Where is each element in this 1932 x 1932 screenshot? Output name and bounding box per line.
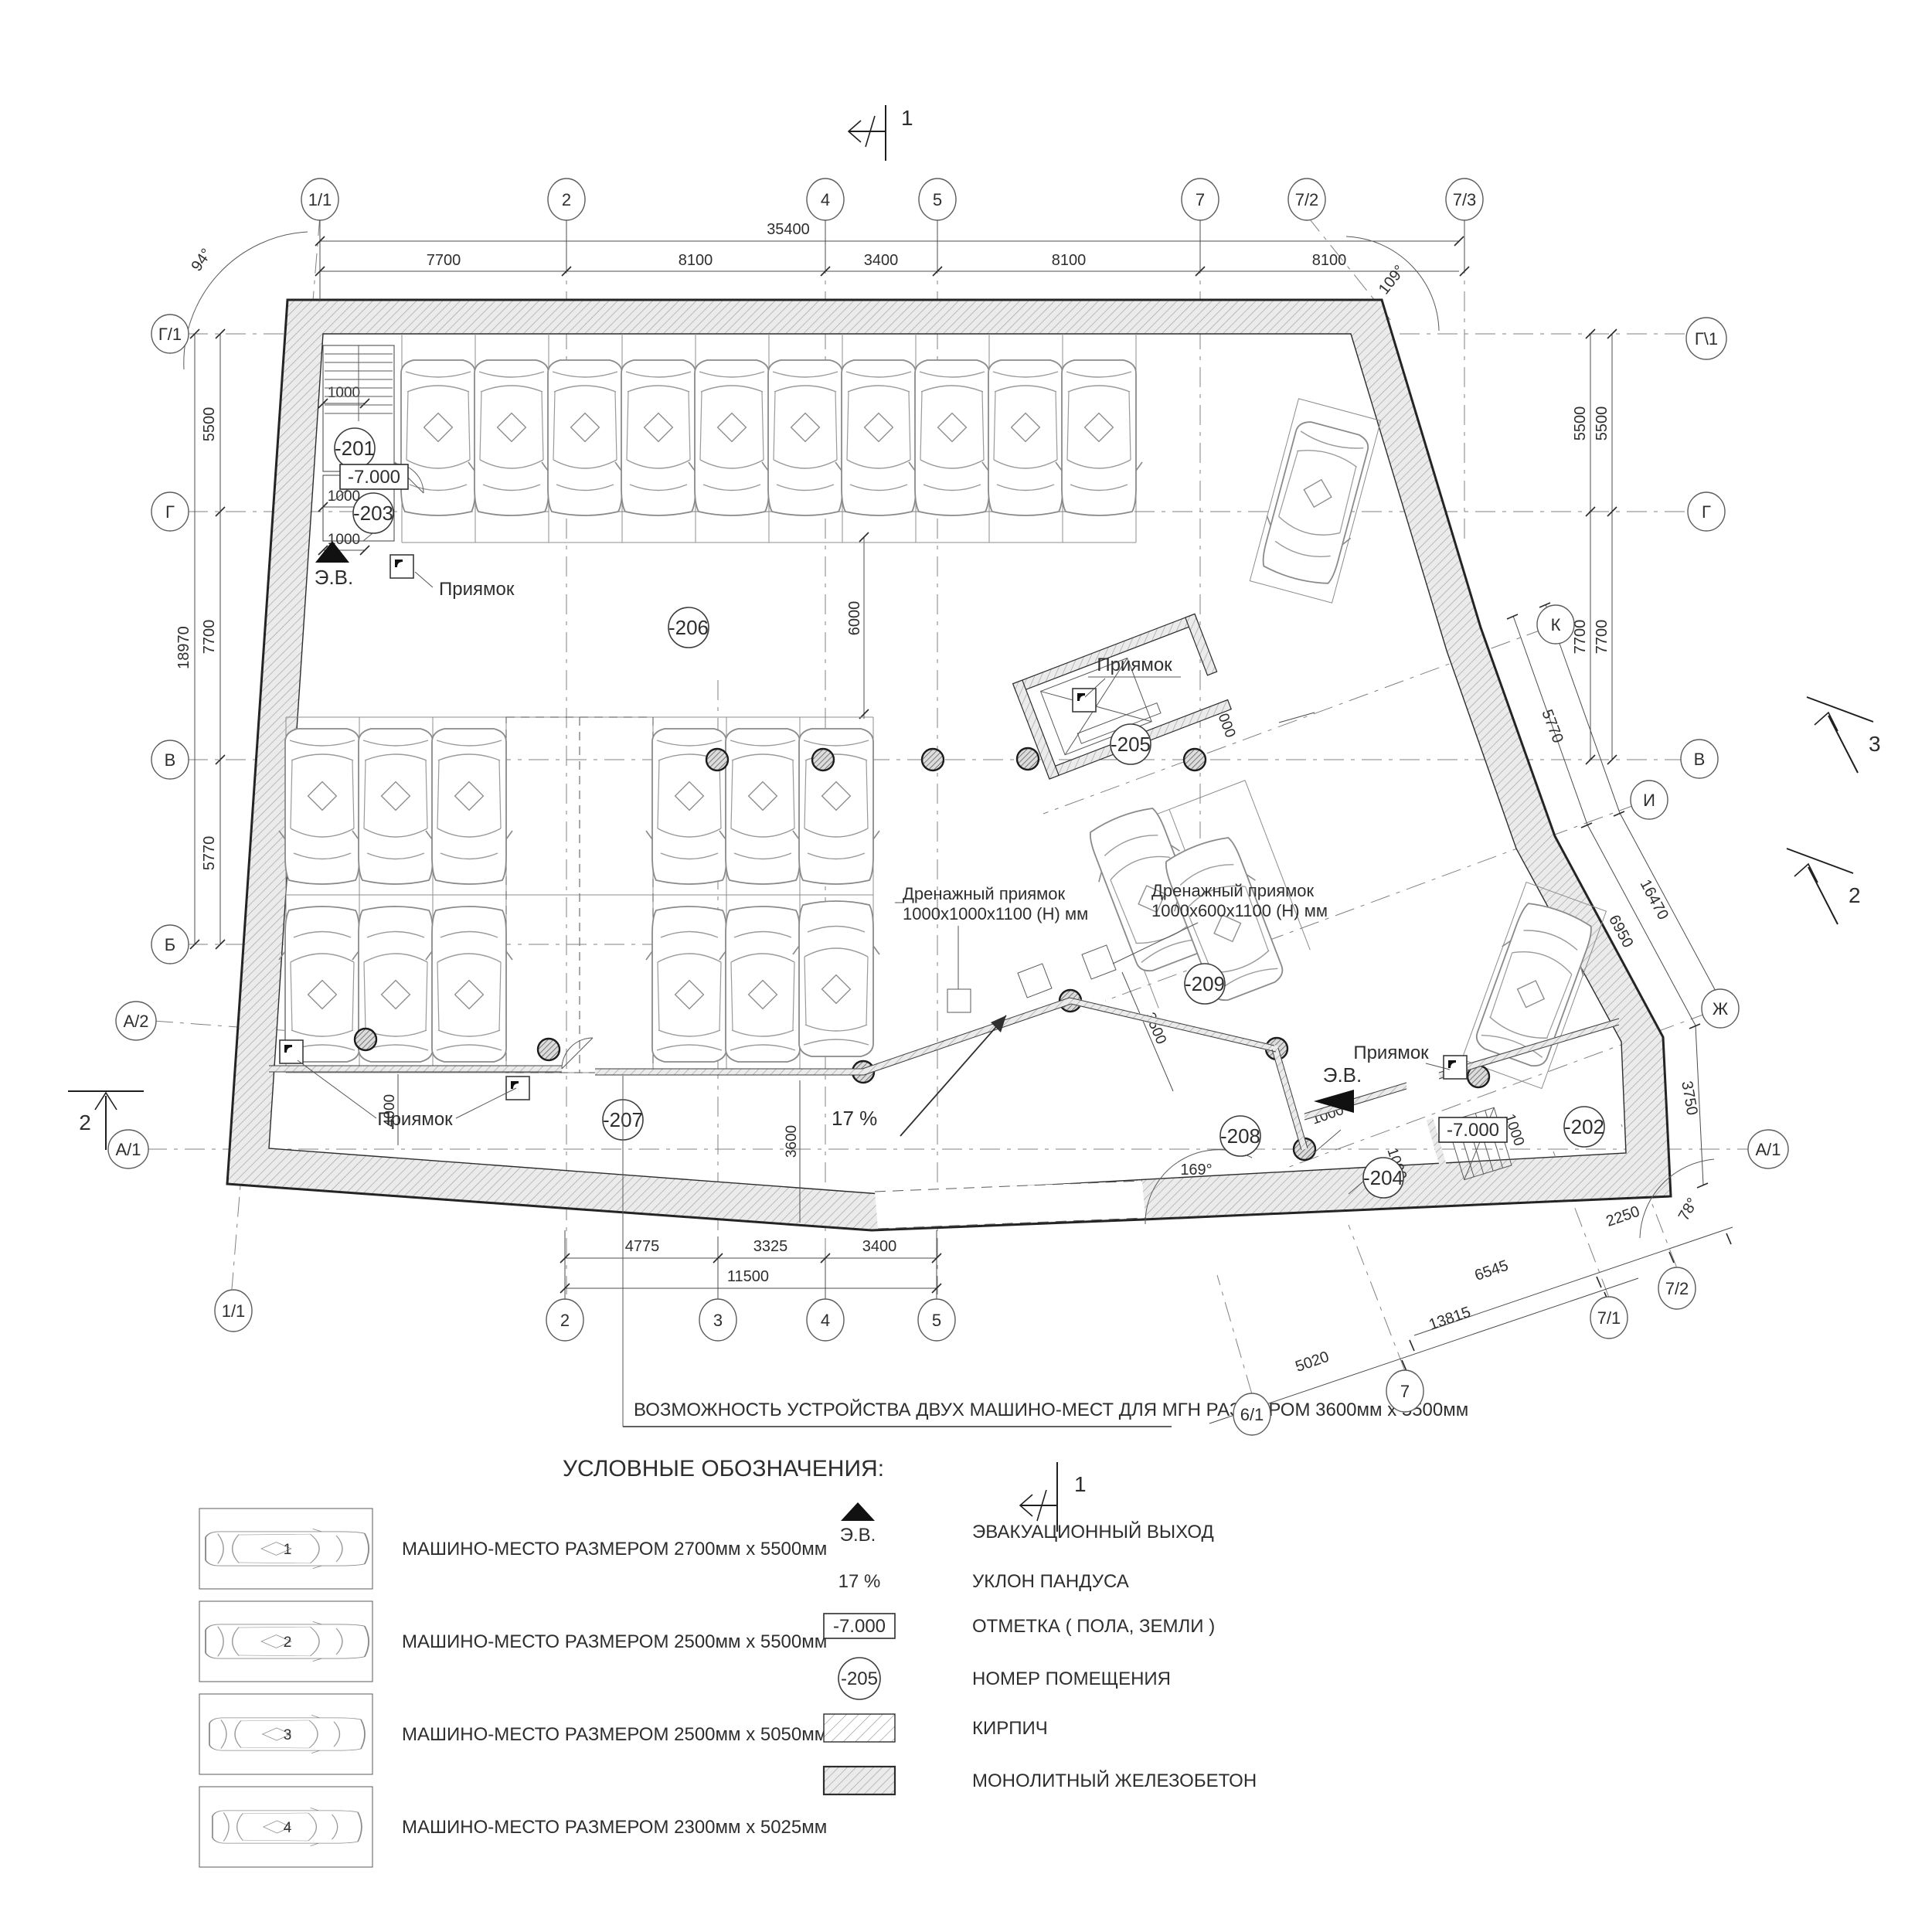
car-symbol	[542, 360, 628, 515]
legend-brick-label: КИРПИЧ	[972, 1718, 1048, 1739]
drain-2-title: Дренажный приямок	[1151, 881, 1315, 900]
section-cut-3-right: 3	[1807, 697, 1881, 773]
legend-car-mark-3: 3	[284, 1727, 292, 1743]
column	[1184, 749, 1206, 770]
drain-pit	[1082, 945, 1116, 979]
dim-left-total: 18970	[175, 626, 192, 669]
drain-1-title: Дренажный приямок	[903, 884, 1066, 903]
column	[538, 1039, 560, 1060]
level-2: -7.000	[1447, 1120, 1499, 1141]
axis-right-v: В	[1694, 750, 1706, 769]
legend-exit-sym: Э.В.	[840, 1525, 876, 1546]
room-202: -202	[1564, 1115, 1604, 1138]
axis-br-7-1: 7/1	[1597, 1308, 1621, 1328]
axis-bot-3: 3	[713, 1311, 723, 1330]
car-symbol	[468, 360, 555, 515]
angle-169: 169°	[1180, 1162, 1212, 1179]
exit-label-1: Э.В.	[315, 566, 353, 589]
drain-2-size: 1000х600х1100 (Н) мм	[1151, 901, 1328, 920]
dim-left-3: 5770	[201, 836, 218, 871]
legend-brick-swatch	[824, 1714, 895, 1742]
axis-left-v: В	[165, 750, 176, 770]
legend-car-mark-4: 4	[284, 1820, 292, 1836]
column	[706, 749, 728, 770]
legend-car-label-4: МАШИНО-МЕСТО РАЗМЕРОМ 2300мм х 5025мм	[402, 1817, 827, 1838]
dim-top-1: 7700	[427, 252, 461, 269]
section-1-label-b: 1	[1074, 1472, 1087, 1496]
section-cut-2-right: 2	[1787, 849, 1861, 924]
column	[1017, 748, 1039, 770]
dim-top-2: 8100	[679, 252, 713, 269]
room-203: -203	[353, 502, 393, 525]
dim-left-2: 7700	[201, 620, 218, 655]
axis-top-7: 7	[1196, 190, 1205, 209]
legend-concrete-label: МОНОЛИТНЫЙ ЖЕЛЕЗОБЕТОН	[972, 1770, 1257, 1791]
legend-exit-icon	[841, 1502, 875, 1521]
dim-left-1: 5500	[201, 407, 218, 442]
legend-car-label-1: МАШИНО-МЕСТО РАЗМЕРОМ 2700мм х 5500мм	[402, 1539, 827, 1560]
dim-right-v2: 5500	[1594, 406, 1611, 441]
car-symbol	[835, 360, 922, 515]
column	[922, 749, 944, 770]
car-symbol	[1056, 360, 1142, 515]
dim-1000-a: 1000	[328, 385, 360, 401]
exit-label-2: Э.В.	[1323, 1063, 1362, 1087]
car-symbol	[909, 360, 995, 515]
axis-bot-5: 5	[932, 1311, 941, 1330]
room-209: -209	[1185, 972, 1225, 995]
dim-br-13815: 13815	[1427, 1304, 1473, 1334]
angle-109: 109°	[1376, 262, 1409, 298]
car-symbol	[762, 360, 849, 515]
car-symbol	[352, 729, 439, 884]
dim-top-4: 8100	[1052, 252, 1087, 269]
legend-car-mark-1: 1	[284, 1542, 292, 1558]
pit-label-4: Приямок	[1353, 1043, 1429, 1063]
axis-right-g: Г	[1702, 502, 1711, 522]
room-206: -206	[668, 616, 709, 639]
legend-title: УСЛОВНЫЕ ОБОЗНАЧЕНИЯ:	[563, 1456, 884, 1481]
axis-left-g1: Г/1	[158, 325, 182, 344]
axis-right-zh: Ж	[1713, 999, 1729, 1019]
axis-top-1-1: 1/1	[308, 190, 332, 209]
legend-car-mark-2: 2	[284, 1634, 292, 1651]
dim-bottom-1: 4775	[625, 1238, 660, 1255]
room-208: -208	[1220, 1124, 1260, 1148]
car-symbol	[719, 906, 806, 1062]
dim-6000: 6000	[846, 601, 863, 636]
car-symbol	[395, 360, 481, 515]
axis-br-7-2: 7/2	[1665, 1279, 1689, 1298]
car-symbol	[426, 729, 512, 884]
axis-top-2: 2	[562, 190, 571, 209]
pit-symbol	[390, 555, 413, 578]
slope-label: 17 %	[832, 1107, 877, 1130]
angle-94: 94°	[188, 246, 215, 274]
room-201: -201	[335, 437, 375, 460]
dim-rdiag-3750: 3750	[1678, 1080, 1700, 1117]
pit-label-3: Приямок	[377, 1109, 453, 1130]
legend-slope-sym: 17 %	[838, 1571, 881, 1592]
floor-plan-page: 35400 7700 8100 3400 8100 8100 18970 550…	[0, 0, 1932, 1932]
legend: УСЛОВНЫЕ ОБОЗНАЧЕНИЯ: 1 МАШИНО-МЕСТО РАЗ…	[199, 1456, 1257, 1867]
legend-level-label: ОТМЕТКА ( ПОЛА, ЗЕМЛИ )	[972, 1616, 1215, 1637]
axis-top-7-2: 7/2	[1295, 190, 1319, 209]
axis-bot-2: 2	[560, 1311, 570, 1330]
axis-br-7: 7	[1400, 1382, 1410, 1401]
level-1: -7.000	[348, 467, 400, 488]
section-2-label-r: 2	[1849, 883, 1861, 907]
legend-level-sym: -7.000	[833, 1616, 886, 1637]
axis-bot-1-1: 1/1	[222, 1301, 246, 1321]
drain-pit	[947, 989, 971, 1012]
pit-label-2: Приямок	[1097, 655, 1172, 675]
axis-right-a1: А/1	[1755, 1140, 1781, 1159]
angle-78: 78°	[1675, 1195, 1702, 1223]
section-1-label: 1	[901, 106, 913, 130]
dim-right-v1: 5500	[1572, 406, 1589, 441]
car-symbol	[615, 360, 702, 515]
column	[355, 1029, 376, 1050]
axis-right-g1: Г\1	[1695, 329, 1718, 349]
dim-top-3: 3400	[864, 252, 899, 269]
car-symbol	[279, 729, 366, 884]
legend-room-label: НОМЕР ПОМЕЩЕНИЯ	[972, 1668, 1171, 1689]
axis-right-i: И	[1643, 791, 1655, 810]
car-symbol	[426, 906, 512, 1062]
legend-car-label-3: МАШИНО-МЕСТО РАЗМЕРОМ 2500мм х 5050мм	[402, 1724, 827, 1745]
axis-left-a2: А/2	[123, 1012, 148, 1031]
dim-top-5: 8100	[1312, 252, 1347, 269]
pit-label-1: Приямок	[439, 579, 515, 600]
section-3-label: 3	[1869, 732, 1881, 756]
dim-br-2250: 2250	[1604, 1203, 1641, 1230]
axis-left-g: Г	[165, 502, 175, 522]
axis-right-k: К	[1551, 615, 1561, 634]
car-symbol	[689, 360, 775, 515]
dim-right-v4: 7700	[1594, 620, 1611, 655]
section-2-label: 2	[79, 1111, 91, 1134]
floor-plan-drawing: 35400 7700 8100 3400 8100 8100 18970 550…	[0, 0, 1932, 1932]
drain-pit	[1018, 964, 1052, 998]
pit-symbol	[1444, 1056, 1467, 1079]
pit-symbol	[1073, 689, 1096, 712]
dim-br-6545: 6545	[1472, 1257, 1510, 1284]
car-symbol	[793, 729, 879, 884]
dim-br-5020: 5020	[1293, 1349, 1331, 1376]
axis-top-5: 5	[933, 190, 942, 209]
legend-slope-label: УКЛОН ПАНДУСА	[972, 1571, 1129, 1592]
axis-br-6-1: 6/1	[1240, 1405, 1264, 1424]
room-205: -205	[1111, 733, 1151, 756]
dim-top-total: 35400	[767, 221, 810, 238]
pit-symbol	[506, 1077, 529, 1100]
car-symbol	[646, 906, 733, 1062]
dim-bottom-2: 3325	[753, 1238, 788, 1255]
legend-concrete-swatch	[824, 1767, 895, 1794]
dim-bottom-3: 3400	[862, 1238, 897, 1255]
car-symbol	[719, 729, 806, 884]
legend-room-sym: -205	[841, 1668, 878, 1689]
pit-symbol	[280, 1040, 303, 1063]
dim-rdiag-5770: 5770	[1538, 707, 1566, 745]
drain-1-size: 1000х1000х1100 (Н) мм	[903, 904, 1088, 923]
dim-3600: 3600	[784, 1125, 800, 1158]
axis-bot-4: 4	[821, 1311, 830, 1330]
axis-left-a1: А/1	[115, 1140, 141, 1159]
car-symbol	[793, 901, 879, 1056]
legend-car-label-2: МАШИНО-МЕСТО РАЗМЕРОМ 2500мм х 5500мм	[402, 1631, 827, 1652]
section-cut-1-top: 1	[849, 105, 913, 161]
axis-top-4: 4	[821, 190, 830, 209]
axis-left-b: Б	[165, 935, 175, 954]
mgn-note: ВОЗМОЖНОСТЬ УСТРОЙСТВА ДВУХ МАШИНО-МЕСТ …	[634, 1399, 1468, 1420]
car-symbol	[279, 906, 366, 1062]
room-204: -204	[1363, 1166, 1403, 1189]
column	[812, 749, 834, 770]
legend-exit-label: ЭВАКУАЦИОННЫЙ ВЫХОД	[972, 1521, 1214, 1543]
axis-top-7-3: 7/3	[1453, 190, 1477, 209]
dim-bottom-total: 11500	[727, 1268, 769, 1285]
car-symbol	[982, 360, 1069, 515]
